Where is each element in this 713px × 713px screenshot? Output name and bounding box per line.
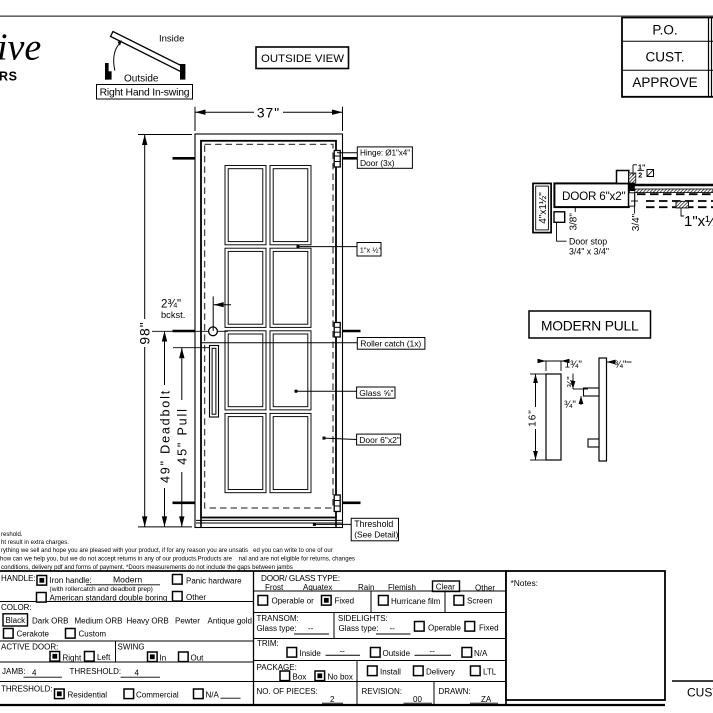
svg-text:Threshold: Threshold bbox=[354, 519, 393, 529]
svg-text:*Notes:: *Notes: bbox=[511, 578, 538, 588]
svg-text:(with rollercatch and deadbolt: (with rollercatch and deadbolt prep) bbox=[50, 586, 153, 593]
svg-text:RS: RS bbox=[0, 70, 18, 84]
svg-text:ive: ive bbox=[0, 27, 41, 69]
svg-text:COLOR:: COLOR: bbox=[1, 603, 32, 612]
svg-text:SWING: SWING bbox=[118, 643, 145, 652]
svg-text:3/4" x 3/4": 3/4" x 3/4" bbox=[569, 246, 609, 256]
svg-text:Inside: Inside bbox=[159, 34, 184, 45]
svg-text:ACTIVE DOOR:: ACTIVE DOOR: bbox=[1, 643, 58, 652]
svg-text:Right Hand In-swing: Right Hand In-swing bbox=[100, 88, 190, 99]
svg-text:Fixed: Fixed bbox=[479, 624, 499, 633]
svg-text:Heavy ORB: Heavy ORB bbox=[127, 617, 169, 626]
svg-text:Outside: Outside bbox=[383, 649, 411, 658]
svg-text:Glass type:: Glass type: bbox=[257, 624, 297, 633]
svg-text:Custom: Custom bbox=[79, 630, 107, 639]
svg-text:--: -- bbox=[390, 624, 396, 633]
svg-text:Modern: Modern bbox=[113, 575, 142, 585]
svg-text:49" Deadbolt: 49" Deadbolt bbox=[158, 389, 172, 483]
svg-text:45" Pull: 45" Pull bbox=[176, 407, 190, 464]
svg-text:Screen: Screen bbox=[467, 597, 492, 606]
svg-text:1"x½": 1"x½" bbox=[684, 213, 713, 230]
svg-text:NO. OF PIECES:: NO. OF PIECES: bbox=[257, 687, 318, 696]
svg-text:¾": ¾" bbox=[615, 360, 627, 371]
svg-text:Outside: Outside bbox=[124, 74, 159, 85]
svg-text:2: 2 bbox=[638, 171, 642, 180]
svg-text:Door 6"x2": Door 6"x2" bbox=[359, 435, 400, 445]
svg-text:Other: Other bbox=[186, 593, 206, 602]
svg-text:Delivery: Delivery bbox=[426, 668, 455, 677]
svg-text:N/A: N/A bbox=[206, 691, 220, 700]
svg-text:Dark ORB: Dark ORB bbox=[32, 617, 68, 626]
svg-text:Glass ⅝": Glass ⅝" bbox=[359, 388, 393, 398]
svg-text:JAMB:: JAMB: bbox=[2, 667, 26, 676]
svg-text:REVISION:: REVISION: bbox=[362, 687, 402, 696]
svg-text:Inside: Inside bbox=[300, 649, 322, 658]
svg-text:3/8": 3/8" bbox=[569, 213, 580, 231]
svg-text:HANDLE:: HANDLE: bbox=[1, 574, 36, 583]
svg-text:Left: Left bbox=[97, 653, 111, 662]
svg-text:Hurricane film: Hurricane film bbox=[391, 597, 441, 606]
svg-text:DOOR/ GLASS TYPE:: DOOR/ GLASS TYPE: bbox=[261, 574, 340, 583]
svg-text:3/4": 3/4" bbox=[631, 213, 642, 231]
svg-text:DOOR 6"x2": DOOR 6"x2" bbox=[562, 190, 626, 203]
svg-text:2: 2 bbox=[330, 695, 335, 704]
svg-text:N/A: N/A bbox=[474, 649, 488, 658]
svg-text:P.O.: P.O. bbox=[652, 23, 677, 38]
svg-text:Rain: Rain bbox=[358, 583, 374, 592]
svg-text:reshold.: reshold. bbox=[1, 532, 23, 538]
svg-text:1"x ½": 1"x ½" bbox=[360, 246, 382, 255]
svg-text:Antique gold: Antique gold bbox=[208, 617, 252, 626]
svg-text:37": 37" bbox=[257, 105, 280, 120]
svg-text:Glass type:: Glass type: bbox=[339, 624, 379, 633]
svg-text:APPROVE: APPROVE bbox=[632, 75, 697, 90]
svg-text:LTL: LTL bbox=[483, 668, 497, 677]
svg-text:PACKAGE:: PACKAGE: bbox=[257, 663, 297, 672]
svg-text:Iron handle:: Iron handle: bbox=[50, 576, 92, 585]
svg-text:TRANSOM:: TRANSOM: bbox=[257, 614, 299, 623]
svg-text:THRESHOLD:: THRESHOLD: bbox=[70, 667, 122, 676]
svg-text:Medium ORB: Medium ORB bbox=[75, 617, 123, 626]
svg-text:Operable or: Operable or bbox=[272, 597, 315, 606]
svg-text:Fixed: Fixed bbox=[335, 597, 355, 606]
svg-text:In: In bbox=[160, 654, 167, 663]
svg-text:--: -- bbox=[430, 647, 436, 656]
svg-text:Install: Install bbox=[380, 668, 401, 677]
svg-text:how can we help you, but we do: how can we help you, but we do not accep… bbox=[0, 557, 355, 563]
svg-text:Aquatex: Aquatex bbox=[303, 583, 332, 592]
svg-text:bckst.: bckst. bbox=[161, 310, 185, 320]
svg-text:rything we sell and hope you a: rything we sell and hope you are pleased… bbox=[1, 548, 333, 554]
svg-text:Black: Black bbox=[6, 616, 27, 625]
svg-text:American standard double borin: American standard double boring bbox=[50, 594, 168, 603]
svg-text:--: -- bbox=[340, 647, 346, 656]
svg-text:Hinge: Ø1"x4": Hinge: Ø1"x4" bbox=[360, 148, 410, 157]
svg-text:Flemish: Flemish bbox=[388, 583, 416, 592]
svg-text:16": 16" bbox=[528, 409, 539, 427]
svg-text:Out: Out bbox=[191, 654, 205, 663]
svg-text:Commercial: Commercial bbox=[136, 691, 179, 700]
svg-text:4"x1½": 4"x1½" bbox=[538, 192, 549, 224]
svg-text:ht result in extra charges.: ht result in extra charges. bbox=[1, 540, 69, 546]
svg-text:ZA: ZA bbox=[481, 695, 492, 704]
svg-text:Panic hardware: Panic hardware bbox=[186, 577, 242, 586]
svg-text:Door (3x): Door (3x) bbox=[360, 158, 395, 168]
svg-text:THRESHOLD:: THRESHOLD: bbox=[1, 685, 53, 694]
svg-text:SIDELIGHTS:: SIDELIGHTS: bbox=[338, 614, 388, 623]
svg-text:1¾": 1¾" bbox=[565, 360, 583, 371]
svg-text:Box: Box bbox=[293, 673, 307, 682]
svg-text:Door stop: Door stop bbox=[569, 237, 607, 247]
svg-text:Pewter: Pewter bbox=[175, 617, 200, 626]
svg-text:Other: Other bbox=[475, 584, 495, 593]
svg-text:2¾": 2¾" bbox=[161, 299, 181, 311]
svg-text:OUTSIDE VIEW: OUTSIDE VIEW bbox=[261, 53, 344, 65]
svg-text:Operable: Operable bbox=[428, 624, 461, 633]
svg-text:Residential: Residential bbox=[68, 691, 108, 700]
svg-text:98": 98" bbox=[137, 321, 152, 344]
svg-text:Right: Right bbox=[63, 654, 82, 663]
svg-text:Frost: Frost bbox=[265, 583, 284, 592]
svg-text:¾": ¾" bbox=[566, 376, 577, 387]
svg-text:DRAWN:: DRAWN: bbox=[439, 687, 471, 696]
svg-text:CUST.: CUST. bbox=[645, 50, 684, 65]
svg-text:(See Detail): (See Detail) bbox=[354, 530, 398, 540]
svg-text:No box: No box bbox=[328, 673, 353, 682]
svg-text:CUST: CUST bbox=[687, 686, 713, 700]
svg-text:4: 4 bbox=[32, 669, 37, 678]
svg-text:¾": ¾" bbox=[564, 400, 576, 411]
svg-text:4: 4 bbox=[135, 669, 140, 678]
svg-text:00: 00 bbox=[413, 695, 422, 704]
svg-text:Roller catch (1x): Roller catch (1x) bbox=[360, 339, 421, 349]
svg-text:MODERN PULL: MODERN PULL bbox=[541, 319, 639, 334]
svg-text:TRIM:: TRIM: bbox=[257, 639, 279, 648]
svg-text:Cerakote: Cerakote bbox=[17, 630, 50, 639]
svg-text:Clear: Clear bbox=[436, 583, 455, 592]
svg-text:--: -- bbox=[308, 624, 314, 633]
